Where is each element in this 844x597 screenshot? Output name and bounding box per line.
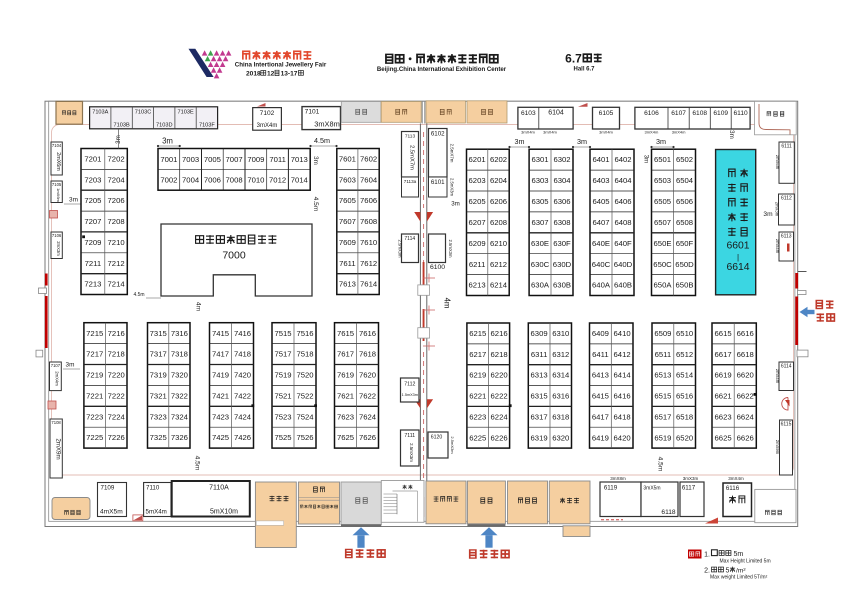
svg-text:7106: 7106 <box>52 233 62 238</box>
svg-text:6402: 6402 <box>614 155 631 164</box>
svg-text:1.: 1. <box>704 552 710 559</box>
svg-text:6305: 6305 <box>531 197 548 206</box>
svg-text:12: 12 <box>267 71 275 78</box>
svg-text:6309: 6309 <box>531 329 548 338</box>
svg-text:7611: 7611 <box>339 259 356 268</box>
svg-text:6204: 6204 <box>490 176 508 185</box>
svg-text:7103B: 7103B <box>114 123 130 129</box>
svg-text:6626: 6626 <box>737 433 754 442</box>
svg-text:650D: 650D <box>675 260 694 269</box>
svg-text:7317: 7317 <box>150 350 167 359</box>
svg-text:6614: 6614 <box>726 262 749 273</box>
svg-text:7423: 7423 <box>212 412 229 421</box>
svg-text:6406: 6406 <box>614 197 631 206</box>
svg-text:6313: 6313 <box>531 371 548 380</box>
svg-text:7113: 7113 <box>405 134 416 140</box>
svg-text:6519: 6519 <box>654 433 671 442</box>
svg-text:7612: 7612 <box>360 259 377 268</box>
svg-text:6508: 6508 <box>676 218 693 227</box>
svg-text:6407: 6407 <box>592 218 609 227</box>
svg-text:6420: 6420 <box>614 433 631 442</box>
svg-text:6616: 6616 <box>737 329 754 338</box>
svg-text:4.5m: 4.5m <box>133 292 144 298</box>
svg-text:2.5mX3m: 2.5mX3m <box>409 443 414 462</box>
svg-text:3m: 3m <box>66 362 75 369</box>
svg-text:7110: 7110 <box>146 485 160 492</box>
svg-text:7426: 7426 <box>234 433 251 442</box>
svg-text:7001: 7001 <box>160 155 177 164</box>
svg-text:6401: 6401 <box>592 155 609 164</box>
svg-text:7219: 7219 <box>86 371 103 380</box>
svg-text:2.: 2. <box>704 568 710 575</box>
svg-text:6101: 6101 <box>431 179 445 186</box>
svg-text:6403: 6403 <box>592 176 609 185</box>
svg-text:2mX4m: 2mX4m <box>775 239 780 254</box>
svg-text:3m: 3m <box>763 211 773 218</box>
svg-text:6109: 6109 <box>713 110 728 117</box>
svg-text:6412: 6412 <box>614 350 631 359</box>
svg-text:2.5mX3m: 2.5mX3m <box>450 436 455 454</box>
svg-text:6312: 6312 <box>552 350 569 359</box>
svg-text:7620: 7620 <box>359 371 376 380</box>
svg-text:7220: 7220 <box>108 371 125 380</box>
svg-text:5: 5 <box>726 568 730 575</box>
svg-text:7103C: 7103C <box>135 110 151 116</box>
svg-text:7013: 7013 <box>291 155 308 164</box>
svg-text:7000: 7000 <box>222 250 246 262</box>
svg-text:7617: 7617 <box>337 350 354 359</box>
svg-text:7526: 7526 <box>296 433 313 442</box>
svg-text:7006: 7006 <box>204 176 221 185</box>
svg-text:3mX4m: 3mX4m <box>257 123 278 129</box>
svg-text:7209: 7209 <box>84 238 101 247</box>
svg-text:6624: 6624 <box>737 412 755 421</box>
svg-text:6314: 6314 <box>552 371 570 380</box>
svg-text:6.7: 6.7 <box>565 51 582 65</box>
svg-text:3mX4m: 3mX4m <box>599 129 613 134</box>
svg-text:6205: 6205 <box>469 197 486 206</box>
svg-text:6217: 6217 <box>469 350 486 359</box>
svg-text:7206: 7206 <box>108 196 125 205</box>
svg-text:2mX6m: 2mX6m <box>775 155 780 170</box>
svg-text:7519: 7519 <box>274 371 291 380</box>
svg-text:7424: 7424 <box>234 412 252 421</box>
svg-text:7205: 7205 <box>84 196 101 205</box>
svg-text:6320: 6320 <box>552 433 569 442</box>
svg-text:6112: 6112 <box>781 196 792 202</box>
svg-text:7626: 7626 <box>359 433 376 442</box>
svg-text:13-17: 13-17 <box>281 71 298 78</box>
svg-text:7103F: 7103F <box>199 123 215 129</box>
svg-text:6520: 6520 <box>676 433 693 442</box>
svg-text:6119: 6119 <box>604 485 618 492</box>
svg-text:6615: 6615 <box>715 329 732 338</box>
svg-text:3mX4m: 3mX4m <box>672 129 686 134</box>
svg-text:7223: 7223 <box>86 412 103 421</box>
svg-text:6215: 6215 <box>469 329 486 338</box>
svg-text:6514: 6514 <box>676 371 694 380</box>
svg-text:7418: 7418 <box>234 350 251 359</box>
svg-text:650B: 650B <box>676 281 694 290</box>
svg-text:7010: 7010 <box>247 176 264 185</box>
svg-text:7415: 7415 <box>212 329 229 338</box>
svg-text:7014: 7014 <box>291 176 309 185</box>
svg-text:7011: 7011 <box>269 155 286 164</box>
svg-text:640A: 640A <box>592 281 611 290</box>
svg-text:6623: 6623 <box>715 412 732 421</box>
svg-text:6310: 6310 <box>552 329 569 338</box>
svg-text:7420: 7420 <box>234 371 251 380</box>
svg-text:2.5mX7m: 2.5mX7m <box>450 144 455 163</box>
svg-text:7323: 7323 <box>150 412 167 421</box>
svg-text:6504: 6504 <box>676 176 694 185</box>
svg-text:7608: 7608 <box>360 217 377 226</box>
svg-text:6507: 6507 <box>654 218 671 227</box>
svg-text:China Intertional Jewellery Fa: China Intertional Jewellery Fair <box>235 61 327 68</box>
svg-text:6618: 6618 <box>737 350 754 359</box>
svg-text:6506: 6506 <box>676 197 693 206</box>
svg-text:7226: 7226 <box>108 433 125 442</box>
svg-text:6111: 6111 <box>781 144 792 150</box>
svg-text:7211: 7211 <box>85 259 102 268</box>
svg-text:4m: 4m <box>195 302 202 312</box>
svg-text:3m: 3m <box>515 137 525 146</box>
svg-text:6208: 6208 <box>490 218 507 227</box>
svg-text:6516: 6516 <box>676 392 693 401</box>
svg-text:7202: 7202 <box>108 155 125 164</box>
svg-text:6304: 6304 <box>553 176 571 185</box>
svg-text:7217: 7217 <box>86 350 103 359</box>
svg-text:2mX9m: 2mX9m <box>775 440 780 455</box>
svg-text:6223: 6223 <box>469 412 486 421</box>
svg-text:3m: 3m <box>577 137 587 146</box>
svg-text:7520: 7520 <box>296 371 313 380</box>
svg-text:6621: 6621 <box>715 392 732 401</box>
svg-text:7604: 7604 <box>360 175 378 184</box>
svg-text:7601: 7601 <box>339 155 356 164</box>
svg-text:640C: 640C <box>592 260 611 269</box>
svg-text:3mX8m: 3mX8m <box>314 120 339 129</box>
svg-text:7114: 7114 <box>404 236 415 242</box>
svg-text:Beijing.China International Ex: Beijing.China International Exhibition C… <box>377 66 507 73</box>
svg-text:7225: 7225 <box>86 433 103 442</box>
svg-text:2.5mX3m: 2.5mX3m <box>450 178 455 196</box>
svg-text:6108: 6108 <box>692 110 707 117</box>
svg-text:3mX8m: 3mX8m <box>610 476 626 481</box>
svg-text:6212: 6212 <box>490 260 507 269</box>
svg-text:3mX4m: 3mX4m <box>521 129 535 134</box>
svg-text:7623: 7623 <box>337 412 354 421</box>
svg-text:7113a: 7113a <box>404 179 417 184</box>
svg-text:650A: 650A <box>654 281 673 290</box>
svg-text:7618: 7618 <box>359 350 376 359</box>
svg-text:3mX4m: 3mX4m <box>543 129 557 134</box>
svg-text:6315: 6315 <box>531 392 548 401</box>
svg-text:6104: 6104 <box>548 110 564 117</box>
svg-text:7607: 7607 <box>339 217 356 226</box>
svg-text:6413: 6413 <box>592 371 609 380</box>
svg-text:6113: 6113 <box>781 234 792 240</box>
svg-text:6100: 6100 <box>430 264 445 271</box>
svg-text:6213: 6213 <box>469 281 486 290</box>
svg-text:7004: 7004 <box>182 176 200 185</box>
svg-text:7002: 7002 <box>160 176 177 185</box>
svg-text:6512: 6512 <box>676 350 693 359</box>
svg-text:6201: 6201 <box>469 155 486 164</box>
svg-text:6214: 6214 <box>490 281 508 290</box>
svg-text:6210: 6210 <box>490 239 507 248</box>
svg-text:6102: 6102 <box>431 131 445 138</box>
svg-text:7417: 7417 <box>212 350 229 359</box>
svg-text:4.5m: 4.5m <box>314 136 330 145</box>
svg-text:Max Height Limited 5m: Max Height Limited 5m <box>720 559 771 565</box>
svg-text:6222: 6222 <box>491 392 508 401</box>
svg-text:6303: 6303 <box>531 176 548 185</box>
svg-text:7326: 7326 <box>171 433 188 442</box>
svg-text:6414: 6414 <box>614 371 632 380</box>
svg-text:Hall 6.7: Hall 6.7 <box>573 66 595 72</box>
svg-text:7103A: 7103A <box>92 110 108 116</box>
svg-text:7625: 7625 <box>337 433 354 442</box>
svg-text:2mX3m: 2mX3m <box>775 202 780 217</box>
svg-text:640D: 640D <box>614 260 633 269</box>
svg-text:2mX6m: 2mX6m <box>55 152 61 171</box>
svg-text:6319: 6319 <box>531 433 548 442</box>
svg-text:3m: 3m <box>451 201 460 208</box>
svg-text:7214: 7214 <box>108 280 126 289</box>
svg-text:6105: 6105 <box>599 110 614 117</box>
svg-text:7103E: 7103E <box>178 110 194 116</box>
svg-text:6103: 6103 <box>521 110 536 117</box>
svg-text:7208: 7208 <box>108 217 125 226</box>
svg-text:7518: 7518 <box>296 350 313 359</box>
svg-text:3m: 3m <box>656 137 666 146</box>
svg-text:7105: 7105 <box>52 182 62 187</box>
svg-text:3m: 3m <box>312 156 319 165</box>
svg-text:7008: 7008 <box>226 176 243 185</box>
svg-text:7215: 7215 <box>86 329 103 338</box>
svg-text:3mX3m: 3mX3m <box>683 476 699 481</box>
svg-text:7605: 7605 <box>339 196 356 205</box>
svg-text:1.5mX3m: 1.5mX3m <box>402 393 418 397</box>
svg-text:7525: 7525 <box>274 433 291 442</box>
svg-text:7005: 7005 <box>204 155 221 164</box>
svg-text:3mX4m: 3mX4m <box>728 476 744 481</box>
svg-text:7422: 7422 <box>234 391 251 400</box>
svg-text:7322: 7322 <box>171 391 188 400</box>
svg-text:4.5m: 4.5m <box>312 197 319 212</box>
svg-text:7516: 7516 <box>296 329 313 338</box>
svg-text:6219: 6219 <box>469 371 486 380</box>
svg-text:7419: 7419 <box>212 371 229 380</box>
svg-text:7622: 7622 <box>359 391 376 400</box>
svg-text:7321: 7321 <box>150 391 167 400</box>
svg-text:7315: 7315 <box>150 329 167 338</box>
svg-text:7201: 7201 <box>84 155 101 164</box>
svg-text:6416: 6416 <box>614 392 631 401</box>
svg-text:6511: 6511 <box>655 350 672 359</box>
svg-text:7325: 7325 <box>150 433 167 442</box>
svg-text:6501: 6501 <box>654 155 671 164</box>
svg-text:6318: 6318 <box>552 412 569 421</box>
svg-text:4m: 4m <box>443 298 452 309</box>
svg-text:7009: 7009 <box>247 155 264 164</box>
svg-text:Max weight Limited 5T/m²: Max weight Limited 5T/m² <box>710 575 768 581</box>
svg-text:6515: 6515 <box>654 392 671 401</box>
svg-text:6617: 6617 <box>715 350 732 359</box>
svg-text:6317: 6317 <box>531 412 548 421</box>
svg-text:6625: 6625 <box>715 433 732 442</box>
svg-text:7610: 7610 <box>360 238 377 247</box>
svg-text:6409: 6409 <box>592 329 609 338</box>
svg-text:7319: 7319 <box>150 371 167 380</box>
svg-text:6601: 6601 <box>726 241 749 252</box>
svg-text:4mX5m: 4mX5m <box>100 509 123 516</box>
svg-text:6206: 6206 <box>490 197 507 206</box>
svg-text:7606: 7606 <box>360 196 377 205</box>
svg-text:650F: 650F <box>676 239 694 248</box>
svg-text:7615: 7615 <box>337 329 354 338</box>
svg-text:6226: 6226 <box>491 433 508 442</box>
svg-text:2mX3m: 2mX3m <box>56 241 61 256</box>
svg-text:7316: 7316 <box>171 329 188 338</box>
svg-text:6311: 6311 <box>531 350 548 359</box>
svg-text:6107: 6107 <box>671 110 686 117</box>
svg-text:7522: 7522 <box>296 391 313 400</box>
svg-text:3m: 3m <box>69 197 78 204</box>
svg-text:6106: 6106 <box>644 110 659 117</box>
svg-text:630A: 630A <box>531 281 550 290</box>
svg-text:7221: 7221 <box>86 391 103 400</box>
svg-text:|: | <box>737 253 739 262</box>
svg-text:6417: 6417 <box>592 412 609 421</box>
svg-text:6207: 6207 <box>469 218 486 227</box>
svg-text:7621: 7621 <box>337 391 354 400</box>
svg-text:7218: 7218 <box>108 350 125 359</box>
svg-text:7416: 7416 <box>234 329 251 338</box>
svg-text:7110A: 7110A <box>209 485 229 492</box>
svg-text:7112: 7112 <box>404 382 415 388</box>
svg-text:630D: 630D <box>553 260 572 269</box>
svg-text:6110: 6110 <box>734 110 749 117</box>
svg-text:2018: 2018 <box>246 71 261 78</box>
svg-text:6419: 6419 <box>592 433 609 442</box>
svg-text:6120: 6120 <box>431 435 443 441</box>
svg-text:7425: 7425 <box>212 433 229 442</box>
svg-text:7210: 7210 <box>108 238 125 247</box>
svg-text:650E: 650E <box>654 239 672 248</box>
svg-text:7222: 7222 <box>108 391 125 400</box>
svg-text:640E: 640E <box>592 239 610 248</box>
svg-text:6301: 6301 <box>531 155 548 164</box>
svg-text:6118: 6118 <box>661 509 676 516</box>
svg-text:6308: 6308 <box>553 218 570 227</box>
svg-text:7216: 7216 <box>108 329 125 338</box>
svg-text:7524: 7524 <box>296 412 314 421</box>
svg-text:7224: 7224 <box>108 412 126 421</box>
svg-text:7104: 7104 <box>52 143 62 148</box>
svg-text:3mX4m: 3mX4m <box>645 129 659 134</box>
svg-text:7421: 7421 <box>212 391 229 400</box>
svg-text:3m: 3m <box>728 130 735 139</box>
svg-text:6411: 6411 <box>592 350 609 359</box>
svg-text:7203: 7203 <box>84 175 101 184</box>
svg-text:6410: 6410 <box>614 329 631 338</box>
svg-text:6221: 6221 <box>469 392 486 401</box>
svg-text:650C: 650C <box>653 260 672 269</box>
svg-text:6216: 6216 <box>491 329 508 338</box>
svg-text:6518: 6518 <box>676 412 693 421</box>
svg-text:3m: 3m <box>162 137 173 146</box>
svg-text:7107: 7107 <box>51 363 61 368</box>
svg-text:6202: 6202 <box>490 155 507 164</box>
svg-text:2mX4m: 2mX4m <box>775 369 780 384</box>
svg-text:640F: 640F <box>614 239 632 248</box>
svg-text:7111: 7111 <box>404 433 415 439</box>
svg-text:6220: 6220 <box>491 371 508 380</box>
svg-text:4.5m: 4.5m <box>194 456 201 471</box>
svg-text:2mX9m: 2mX9m <box>54 438 61 459</box>
svg-text:3m: 3m <box>643 155 650 164</box>
svg-text:6404: 6404 <box>614 176 632 185</box>
svg-text:7613: 7613 <box>339 280 356 289</box>
svg-text:6224: 6224 <box>491 412 509 421</box>
svg-text:5m: 5m <box>734 551 744 558</box>
svg-text:7102: 7102 <box>260 110 275 117</box>
svg-text:630E: 630E <box>531 239 549 248</box>
svg-text:6505: 6505 <box>654 197 671 206</box>
svg-text:6503: 6503 <box>654 176 671 185</box>
svg-text:7609: 7609 <box>339 238 356 247</box>
svg-text:7517: 7517 <box>274 350 291 359</box>
svg-text:6620: 6620 <box>737 371 754 380</box>
svg-text:6116: 6116 <box>726 485 740 492</box>
svg-text:6415: 6415 <box>592 392 609 401</box>
svg-text:6114: 6114 <box>781 364 792 370</box>
svg-text:5mX4m: 5mX4m <box>146 509 167 516</box>
svg-text:6211: 6211 <box>469 260 486 269</box>
svg-text:6306: 6306 <box>553 197 570 206</box>
svg-text:6117: 6117 <box>682 485 696 492</box>
svg-text:6209: 6209 <box>469 239 486 248</box>
svg-text:6225: 6225 <box>469 433 486 442</box>
svg-text:6418: 6418 <box>614 412 631 421</box>
svg-text:7109: 7109 <box>101 485 115 492</box>
svg-text:6502: 6502 <box>676 155 693 164</box>
svg-text:7320: 7320 <box>171 371 188 380</box>
svg-text:7619: 7619 <box>337 371 354 380</box>
svg-text:6619: 6619 <box>715 371 732 380</box>
svg-text:3mX5m: 3mX5m <box>643 486 660 492</box>
svg-text:2.5mX7m: 2.5mX7m <box>408 145 414 170</box>
svg-text:6405: 6405 <box>592 197 609 206</box>
svg-text:7212: 7212 <box>108 259 125 268</box>
svg-text:7318: 7318 <box>171 350 188 359</box>
svg-text:6517: 6517 <box>654 412 671 421</box>
svg-text:6408: 6408 <box>614 218 631 227</box>
svg-text:7204: 7204 <box>108 175 126 184</box>
svg-text:7624: 7624 <box>359 412 377 421</box>
svg-text:7616: 7616 <box>359 329 376 338</box>
svg-text:6316: 6316 <box>552 392 569 401</box>
svg-text:630F: 630F <box>553 239 571 248</box>
svg-text:1mX6m: 1mX6m <box>56 188 61 202</box>
svg-text:6203: 6203 <box>469 176 486 185</box>
svg-text:7602: 7602 <box>360 155 377 164</box>
svg-text:630C: 630C <box>531 260 550 269</box>
svg-text:6218: 6218 <box>491 350 508 359</box>
svg-text:/m²: /m² <box>736 568 746 575</box>
